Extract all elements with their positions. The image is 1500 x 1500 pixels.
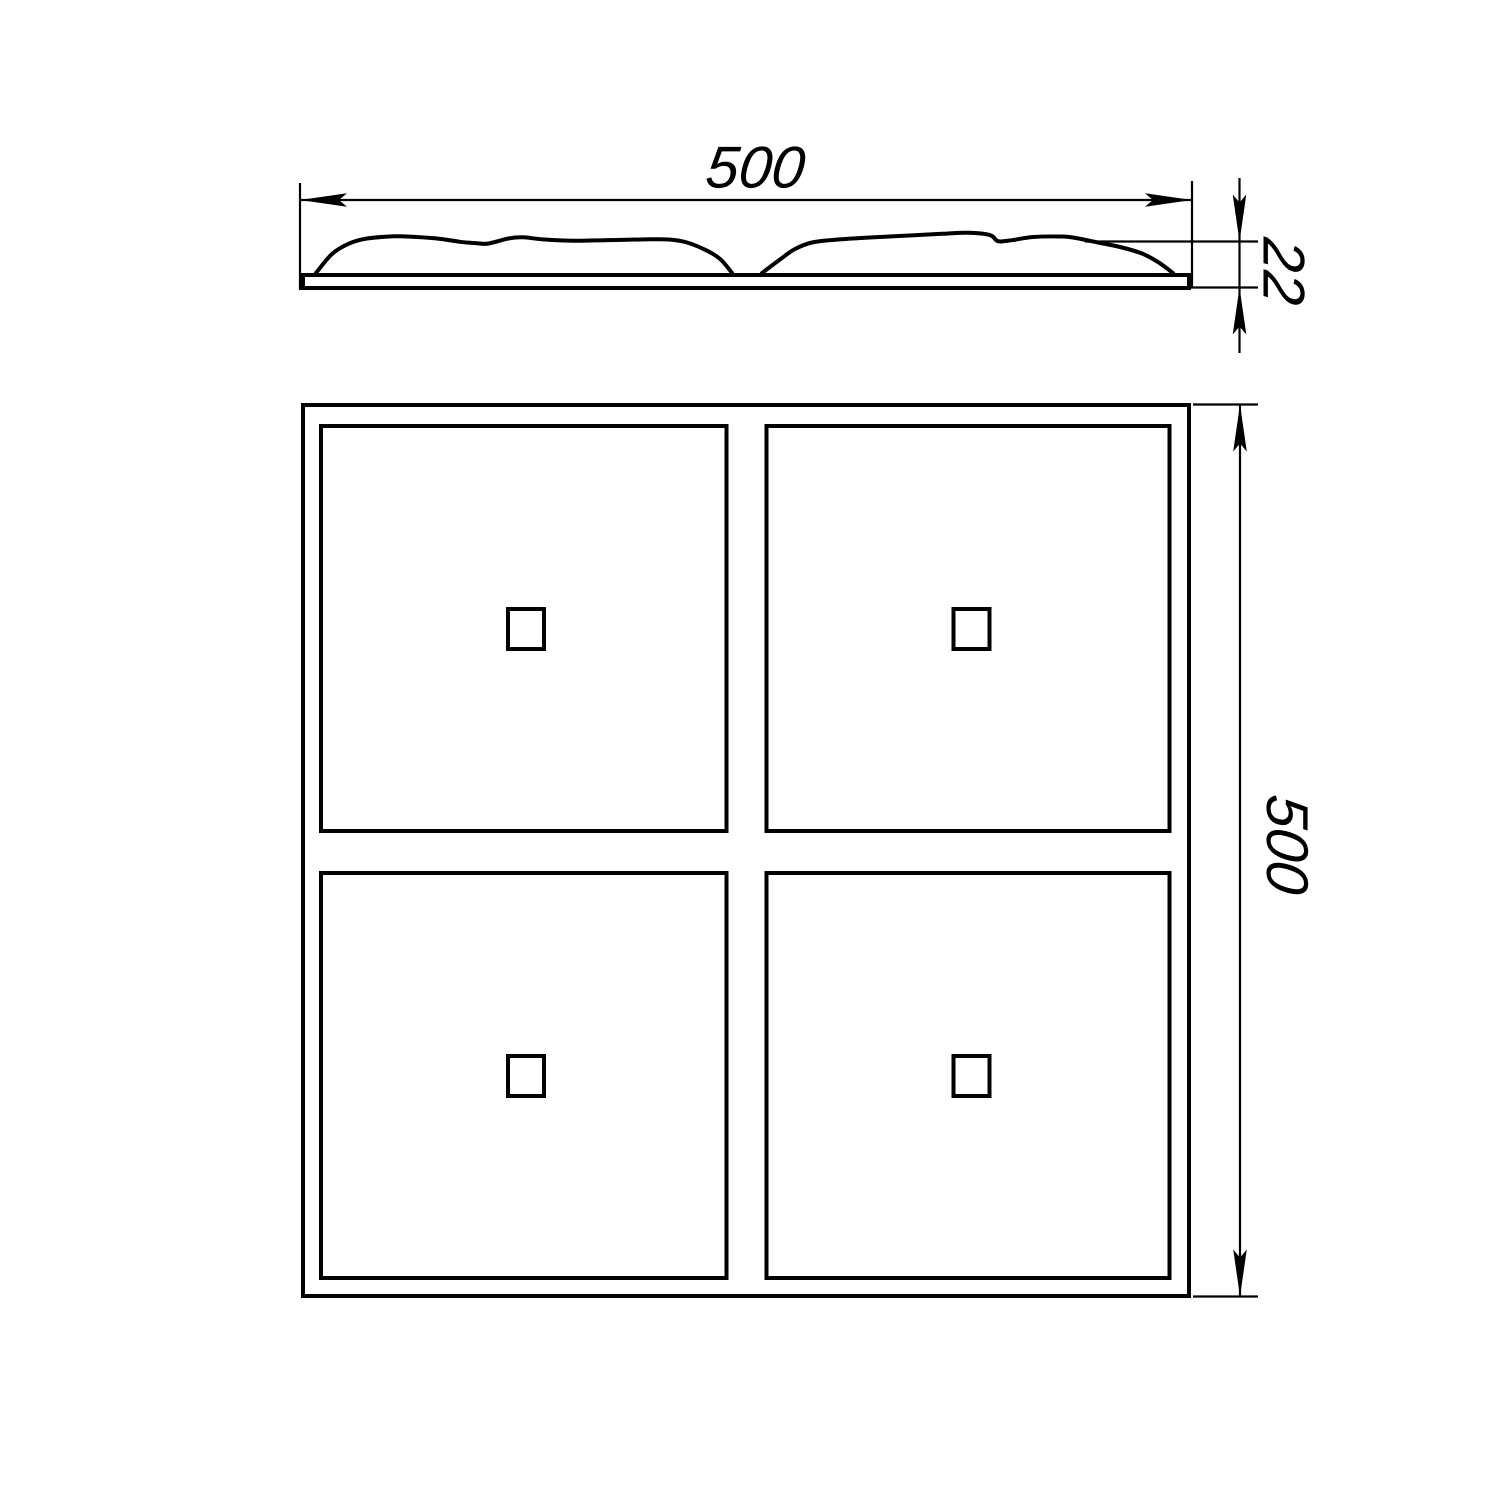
svg-text:500: 500: [1254, 792, 1321, 898]
svg-text:22: 22: [1251, 234, 1318, 308]
svg-text:500: 500: [703, 134, 809, 201]
